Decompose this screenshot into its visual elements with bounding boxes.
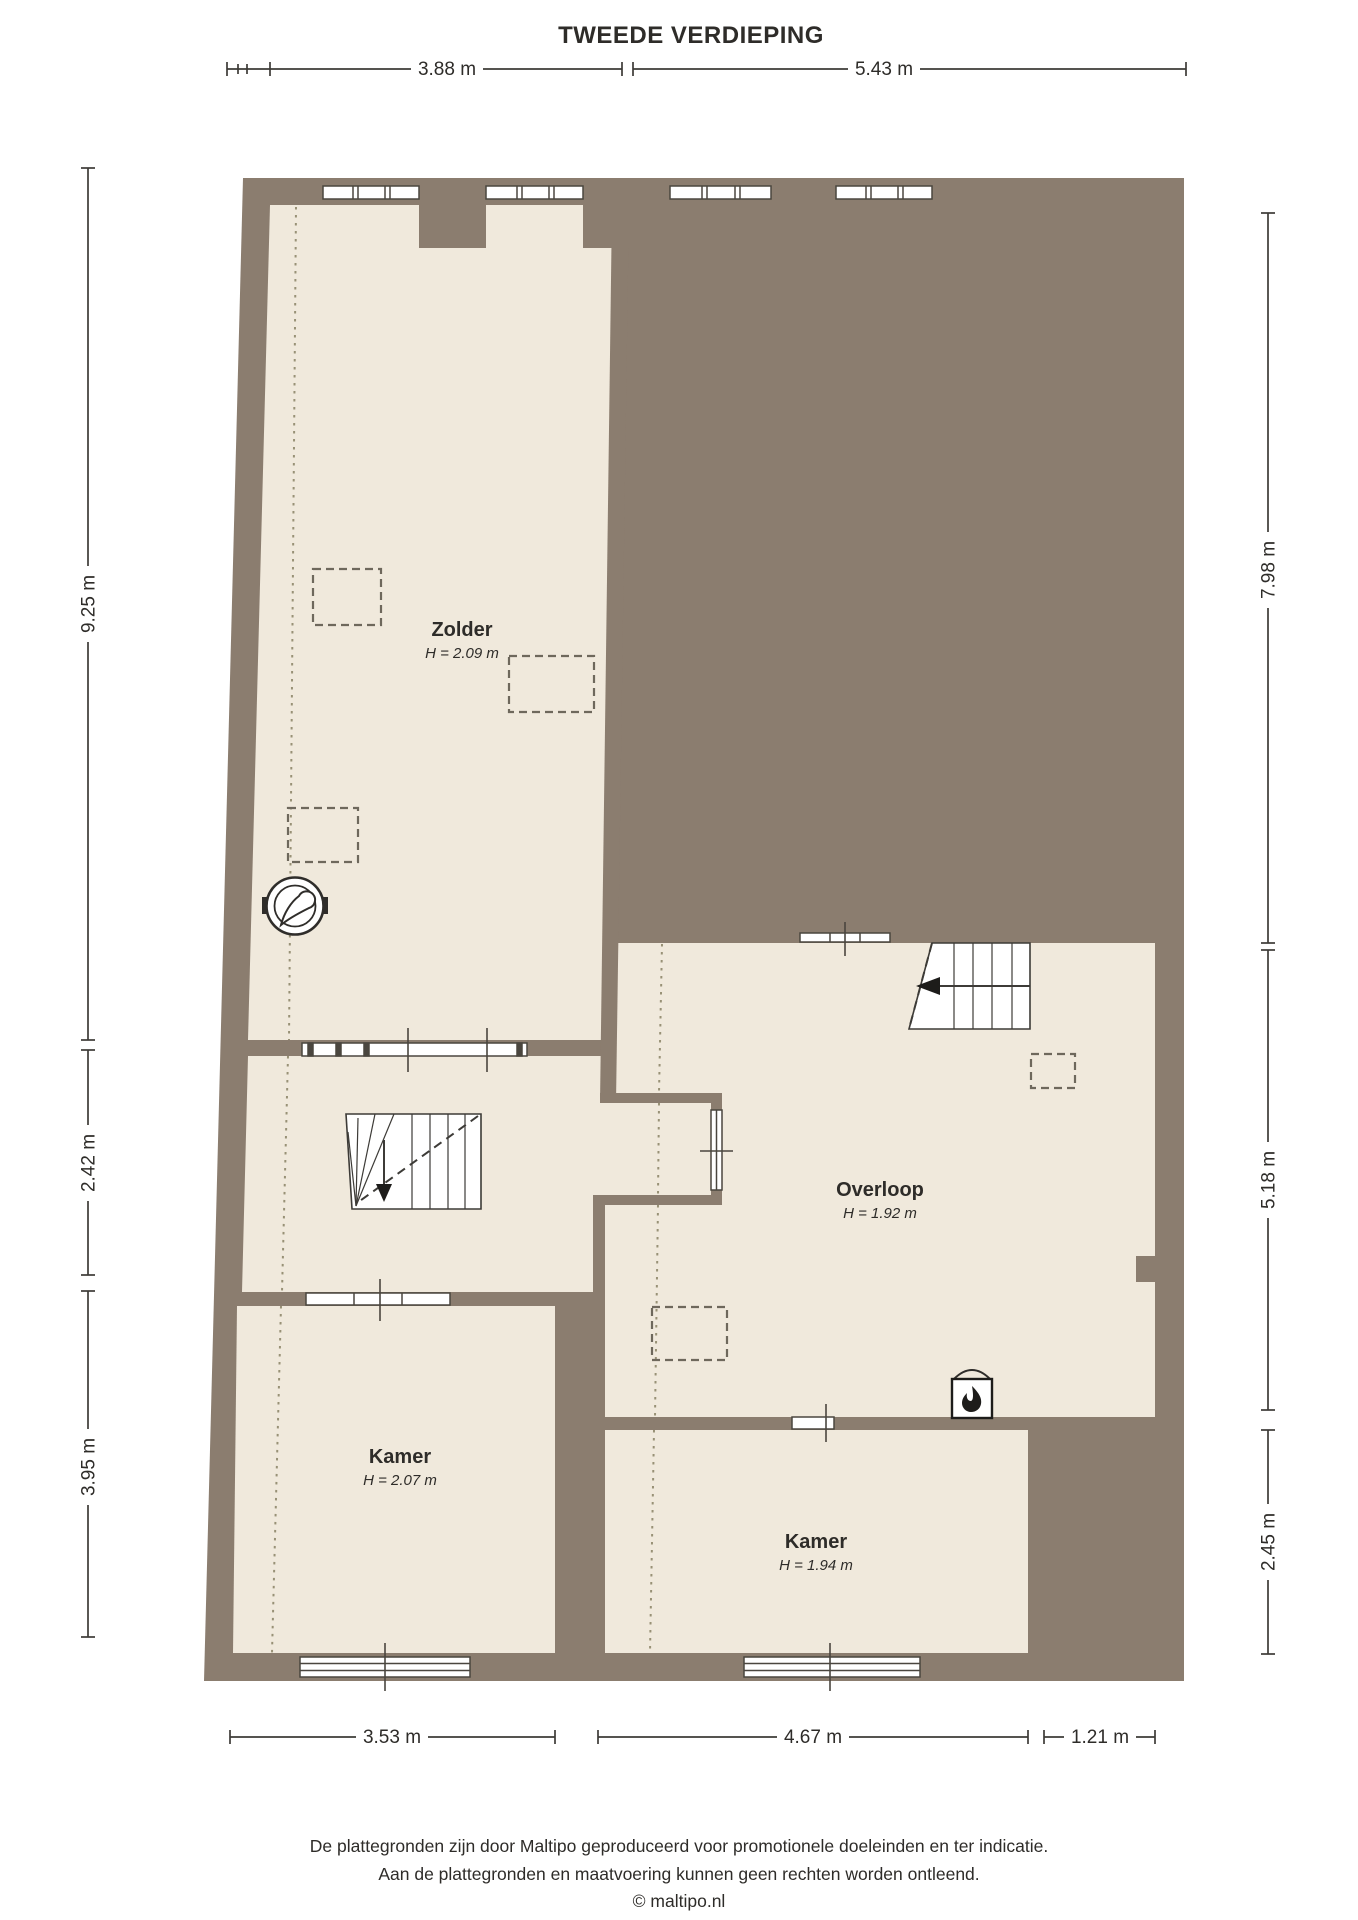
zolder-label: Zolder <box>431 619 492 641</box>
dim-left-2: 2.42 m <box>79 1134 100 1192</box>
floorplan-canvas: TWEEDE VERDIEPING <box>0 0 1358 1920</box>
footer: De plattegronden zijn door Maltipo gepro… <box>310 1836 1048 1911</box>
overloop-height: H = 1.92 m <box>843 1205 917 1222</box>
dim-right-1: 7.98 m <box>1259 541 1280 599</box>
dim-bottom-2: 4.67 m <box>784 1727 842 1748</box>
window <box>323 186 419 199</box>
footer-line-2: Aan de plattegronden en maatvoering kunn… <box>378 1864 979 1884</box>
window <box>486 186 583 199</box>
window <box>670 186 771 199</box>
overloop-label: Overloop <box>836 1179 924 1201</box>
footer-line-1: De plattegronden zijn door Maltipo gepro… <box>310 1836 1048 1856</box>
footer-copyright: © maltipo.nl <box>633 1891 726 1911</box>
dim-right-2: 5.18 m <box>1259 1151 1280 1209</box>
dim-bottom-1: 3.53 m <box>363 1727 421 1748</box>
kamer-right-height: H = 1.94 m <box>779 1557 853 1574</box>
zolder-height: H = 2.09 m <box>425 645 499 662</box>
kamer-right-label: Kamer <box>785 1531 847 1553</box>
dim-top-2: 5.43 m <box>855 59 913 80</box>
dim-right-3: 2.45 m <box>1259 1513 1280 1571</box>
dim-top-1: 3.88 m <box>418 59 476 80</box>
kamer-left-label: Kamer <box>369 1446 431 1468</box>
stairs-down-icon <box>346 1114 481 1209</box>
kamer-left-height: H = 2.07 m <box>363 1472 437 1489</box>
dim-left-3: 3.95 m <box>79 1438 100 1496</box>
window <box>836 186 932 199</box>
dim-left-1: 9.25 m <box>79 575 100 633</box>
floorplan-page: TWEEDE VERDIEPING <box>0 0 1358 1920</box>
dim-bottom-3: 1.21 m <box>1071 1727 1129 1748</box>
page-title: TWEEDE VERDIEPING <box>558 22 824 49</box>
